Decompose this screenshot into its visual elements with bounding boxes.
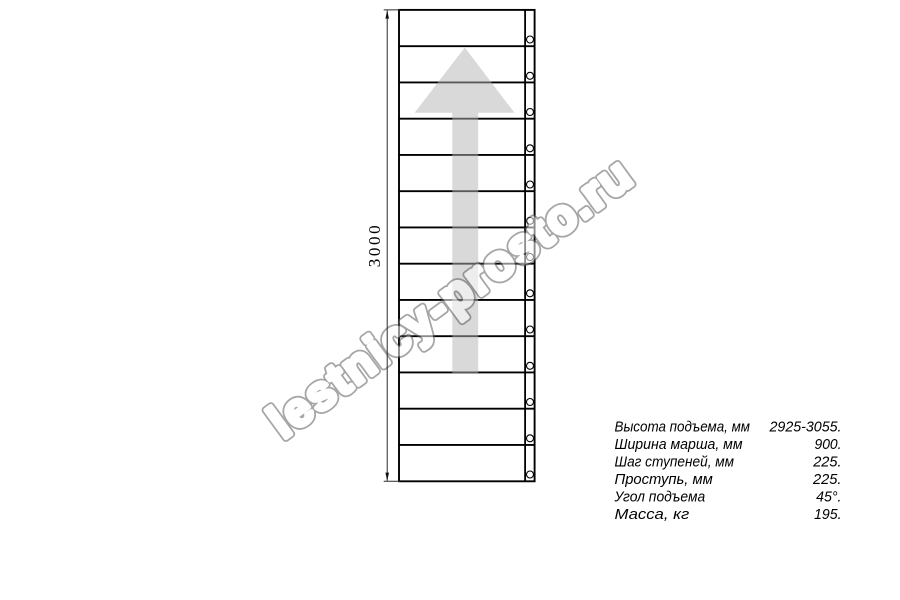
svg-text:900.: 900. [815,436,842,453]
svg-text:225.: 225. [812,471,841,488]
svg-text:2925-3055.: 2925-3055. [769,419,842,436]
svg-text:Шаг ступеней, мм: Шаг ступеней, мм [615,454,735,471]
svg-text:Высота подъема, мм: Высота подъема, мм [615,419,751,436]
svg-text:Проступь, мм: Проступь, мм [615,471,713,488]
svg-text:Ширина марша, мм: Ширина марша, мм [615,436,743,453]
svg-text:Масса, кг: Масса, кг [615,506,690,523]
svg-text:Угол подъема: Угол подъема [614,489,706,506]
svg-text:3000: 3000 [365,223,384,267]
svg-text:225.: 225. [812,454,841,471]
svg-text:195.: 195. [814,506,842,523]
svg-text:45°.: 45°. [816,489,841,506]
